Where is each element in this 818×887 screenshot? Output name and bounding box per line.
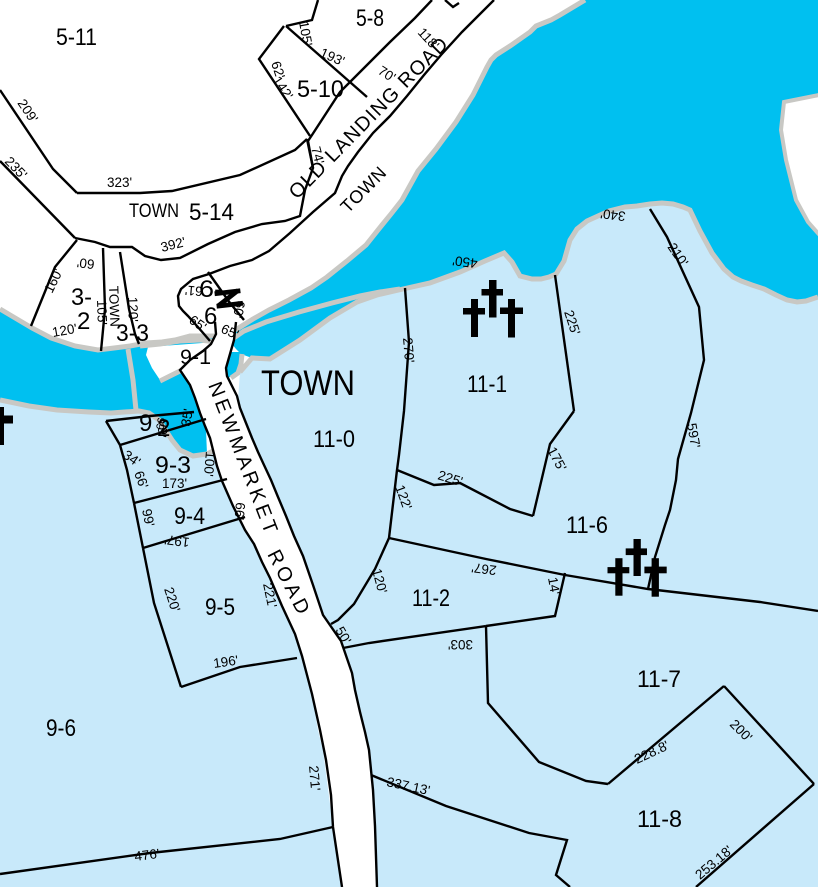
svg-text:197': 197' <box>164 532 191 550</box>
svg-text:11-7: 11-7 <box>637 666 681 693</box>
svg-text:9-6: 9-6 <box>46 715 76 742</box>
svg-text:11-0: 11-0 <box>313 426 355 453</box>
svg-text:9-3: 9-3 <box>155 452 191 479</box>
svg-text:61': 61' <box>184 282 203 298</box>
svg-text:11-1: 11-1 <box>467 371 507 398</box>
svg-text:267': 267' <box>471 560 498 578</box>
svg-text:TOWN: TOWN <box>261 364 355 403</box>
svg-text:270': 270' <box>400 337 417 363</box>
svg-text:303': 303' <box>448 637 473 652</box>
svg-text:9-4: 9-4 <box>174 503 205 530</box>
svg-text:60': 60' <box>76 255 95 272</box>
svg-text:3-: 3- <box>71 284 92 311</box>
svg-text:340': 340' <box>600 206 627 224</box>
svg-text:11-6: 11-6 <box>566 512 608 539</box>
svg-text:60': 60' <box>230 299 248 319</box>
svg-text:5-8: 5-8 <box>356 5 384 32</box>
svg-text:11-8: 11-8 <box>637 806 682 833</box>
svg-text:5-14: 5-14 <box>189 199 234 226</box>
svg-text:35': 35' <box>178 408 196 428</box>
svg-text:9-1: 9-1 <box>180 346 211 369</box>
svg-text:5-11: 5-11 <box>56 24 97 51</box>
svg-text:14': 14' <box>545 576 563 596</box>
svg-text:11-2: 11-2 <box>412 585 450 612</box>
svg-text:TOWN: TOWN <box>129 201 179 222</box>
svg-text:173': 173' <box>162 476 187 491</box>
svg-text:9-5: 9-5 <box>205 594 235 621</box>
svg-text:450': 450' <box>452 253 479 271</box>
svg-text:66': 66' <box>231 502 247 521</box>
svg-text:9: 9 <box>139 410 152 437</box>
svg-text:TOWN: TOWN <box>106 286 122 327</box>
svg-text:99': 99' <box>154 418 172 438</box>
svg-text:100': 100' <box>201 451 218 477</box>
svg-text:271': 271' <box>306 765 323 791</box>
svg-text:2: 2 <box>77 308 90 335</box>
svg-text:323': 323' <box>107 175 132 190</box>
svg-text:5-10: 5-10 <box>297 76 344 103</box>
svg-text:476': 476' <box>134 846 161 864</box>
svg-text:120': 120' <box>125 297 141 323</box>
